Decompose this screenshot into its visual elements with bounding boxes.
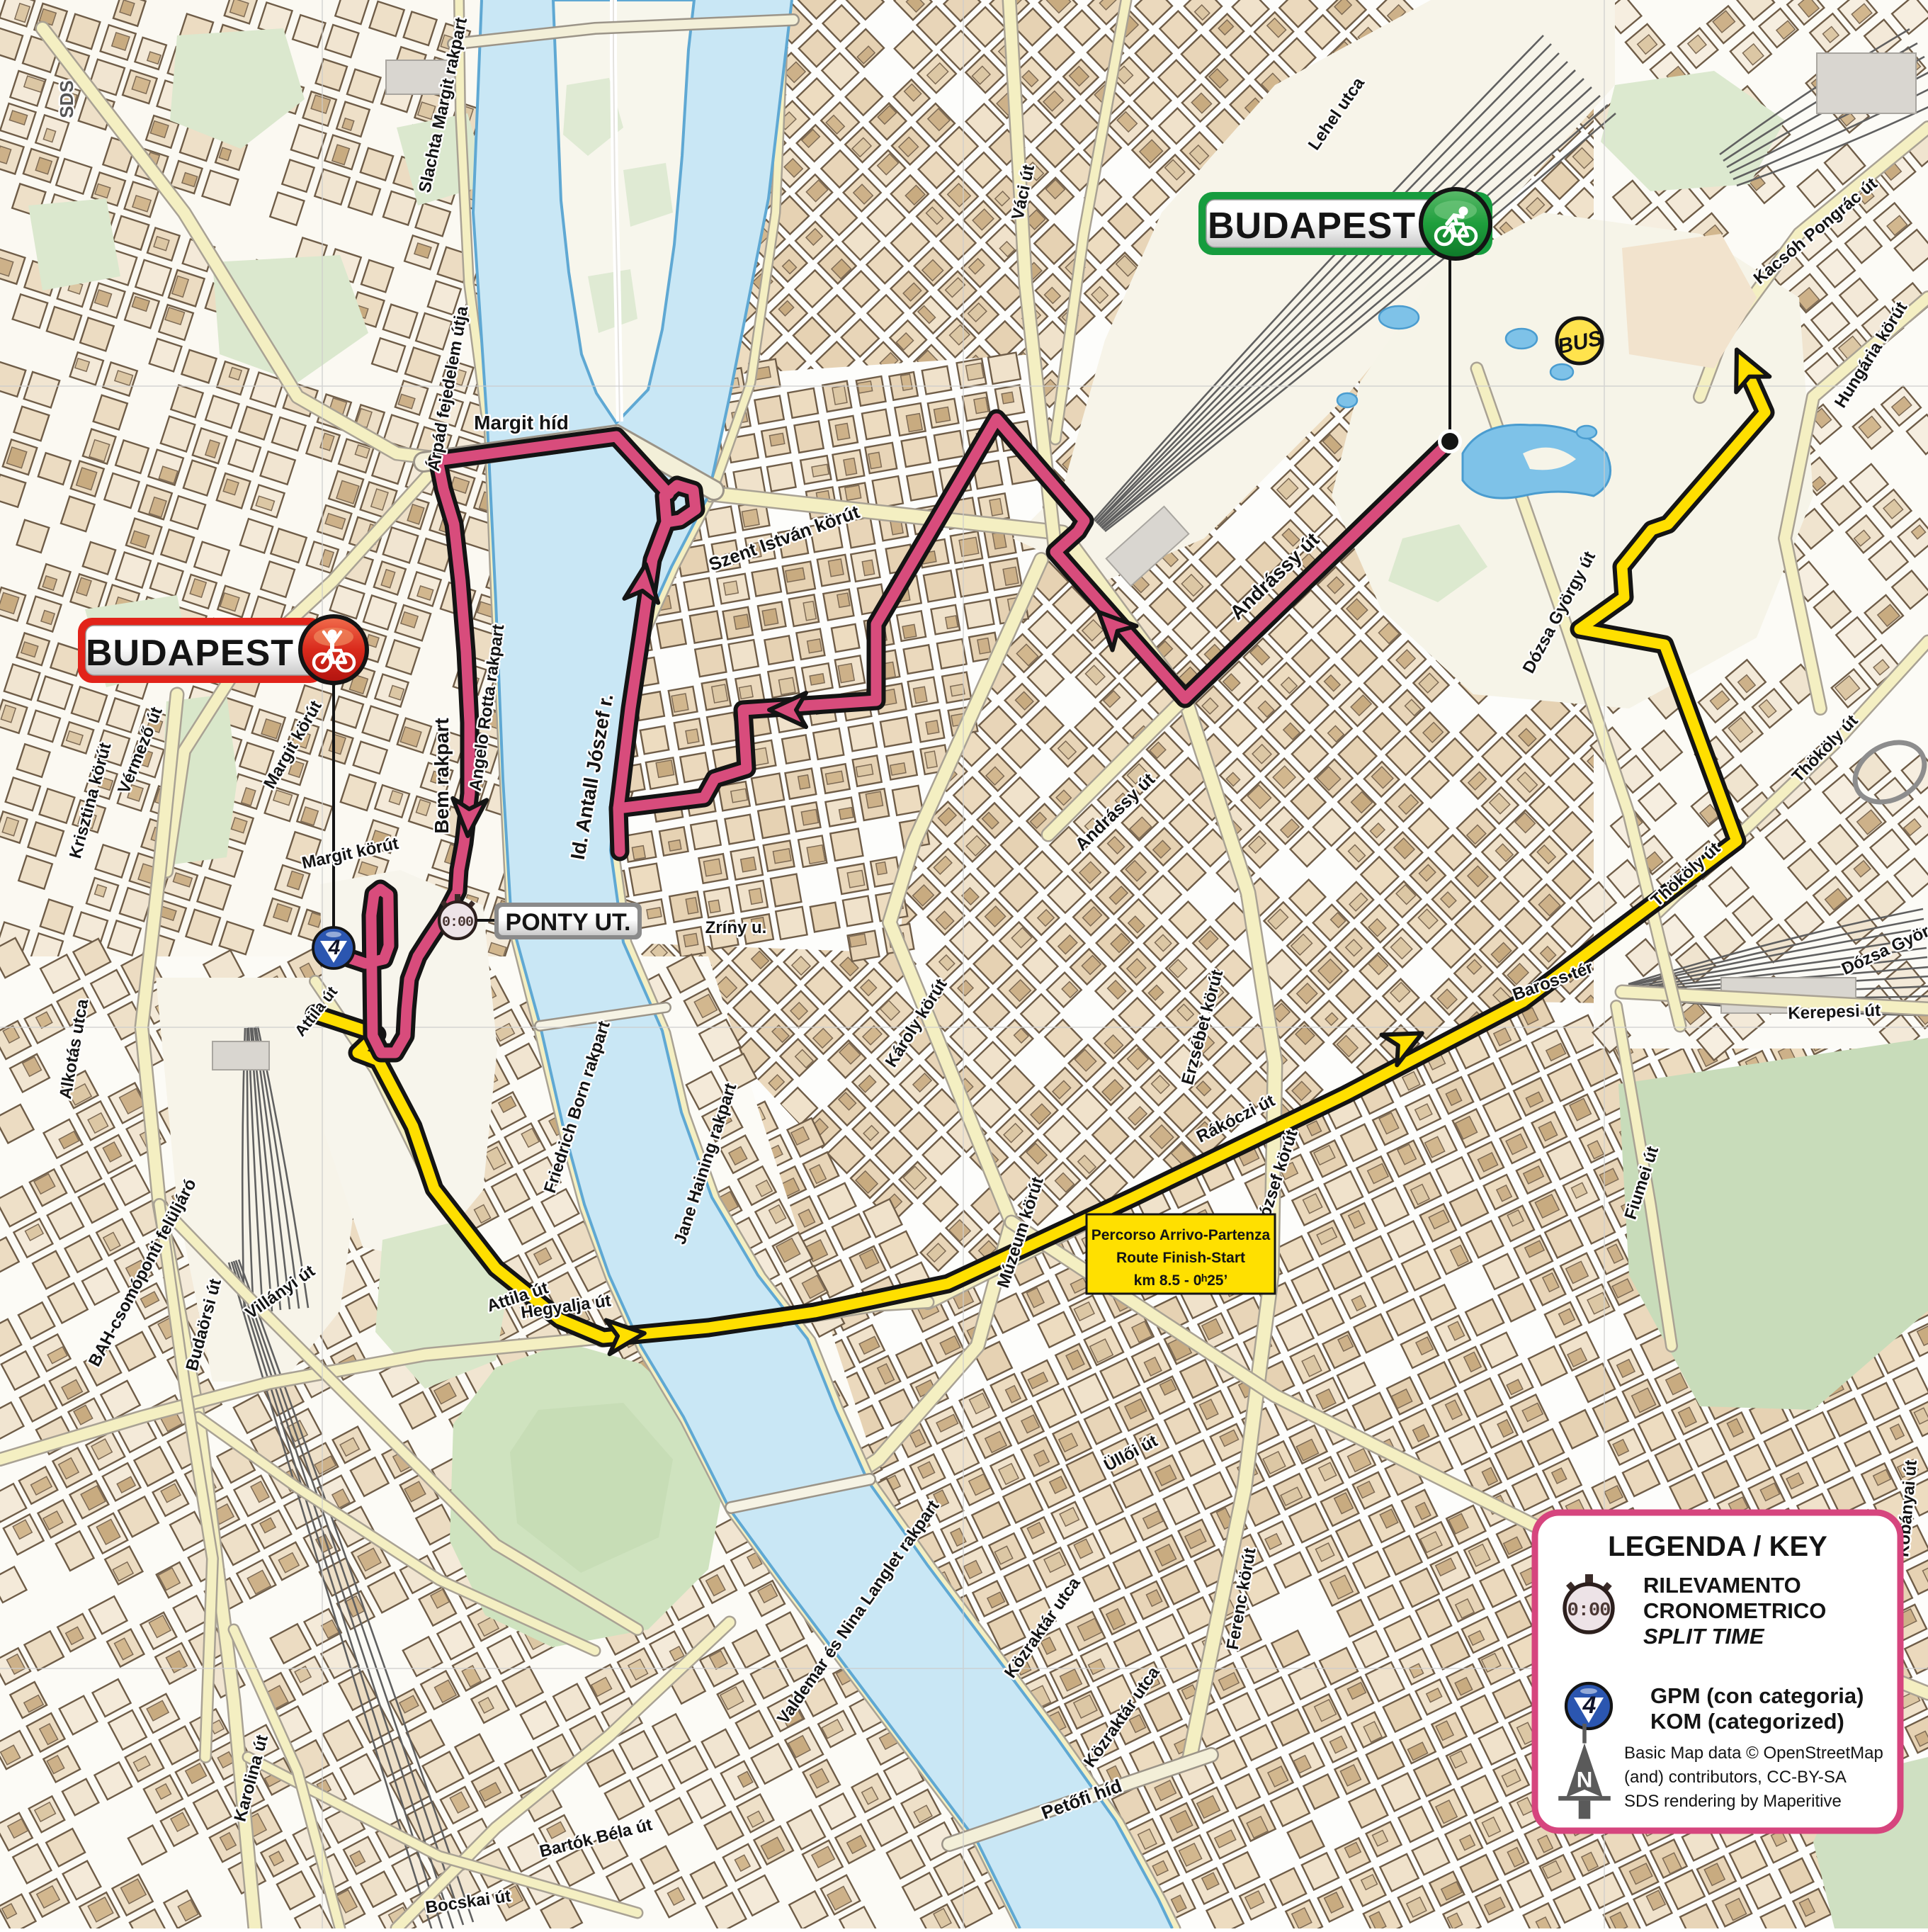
svg-text:0:00: 0:00 [1567, 1600, 1611, 1622]
svg-text:km 8.5 - 0ʰ25’: km 8.5 - 0ʰ25’ [1134, 1272, 1228, 1289]
svg-text:SDS: SDS [56, 80, 77, 118]
svg-text:Route Finish-Start: Route Finish-Start [1116, 1250, 1245, 1266]
svg-text:GPM (con categoria): GPM (con categoria) [1650, 1683, 1864, 1708]
svg-text:Kerepesi út: Kerepesi út [1788, 1001, 1881, 1024]
svg-text:RILEVAMENTO: RILEVAMENTO [1643, 1573, 1801, 1598]
svg-text:KOM (categorized): KOM (categorized) [1650, 1709, 1844, 1734]
svg-text:Margit híd: Margit híd [474, 412, 569, 434]
svg-text:SPLIT TIME: SPLIT TIME [1643, 1624, 1765, 1649]
svg-text:4: 4 [1582, 1692, 1597, 1719]
svg-text:LEGENDA / KEY: LEGENDA / KEY [1608, 1531, 1827, 1562]
svg-text:CRONOMETRICO: CRONOMETRICO [1643, 1598, 1826, 1623]
svg-text:Percorso Arrivo-Partenza: Percorso Arrivo-Partenza [1091, 1227, 1271, 1243]
svg-text:BUDAPEST: BUDAPEST [86, 633, 294, 674]
svg-text:PONTY UT.: PONTY UT. [506, 909, 631, 936]
svg-text:4: 4 [328, 936, 341, 959]
svg-text:Zríny u.: Zríny u. [705, 918, 767, 937]
svg-text:BUDAPEST: BUDAPEST [1208, 205, 1416, 247]
svg-text:0:00: 0:00 [442, 915, 473, 931]
svg-text:Bem rakpart: Bem rakpart [431, 718, 453, 833]
